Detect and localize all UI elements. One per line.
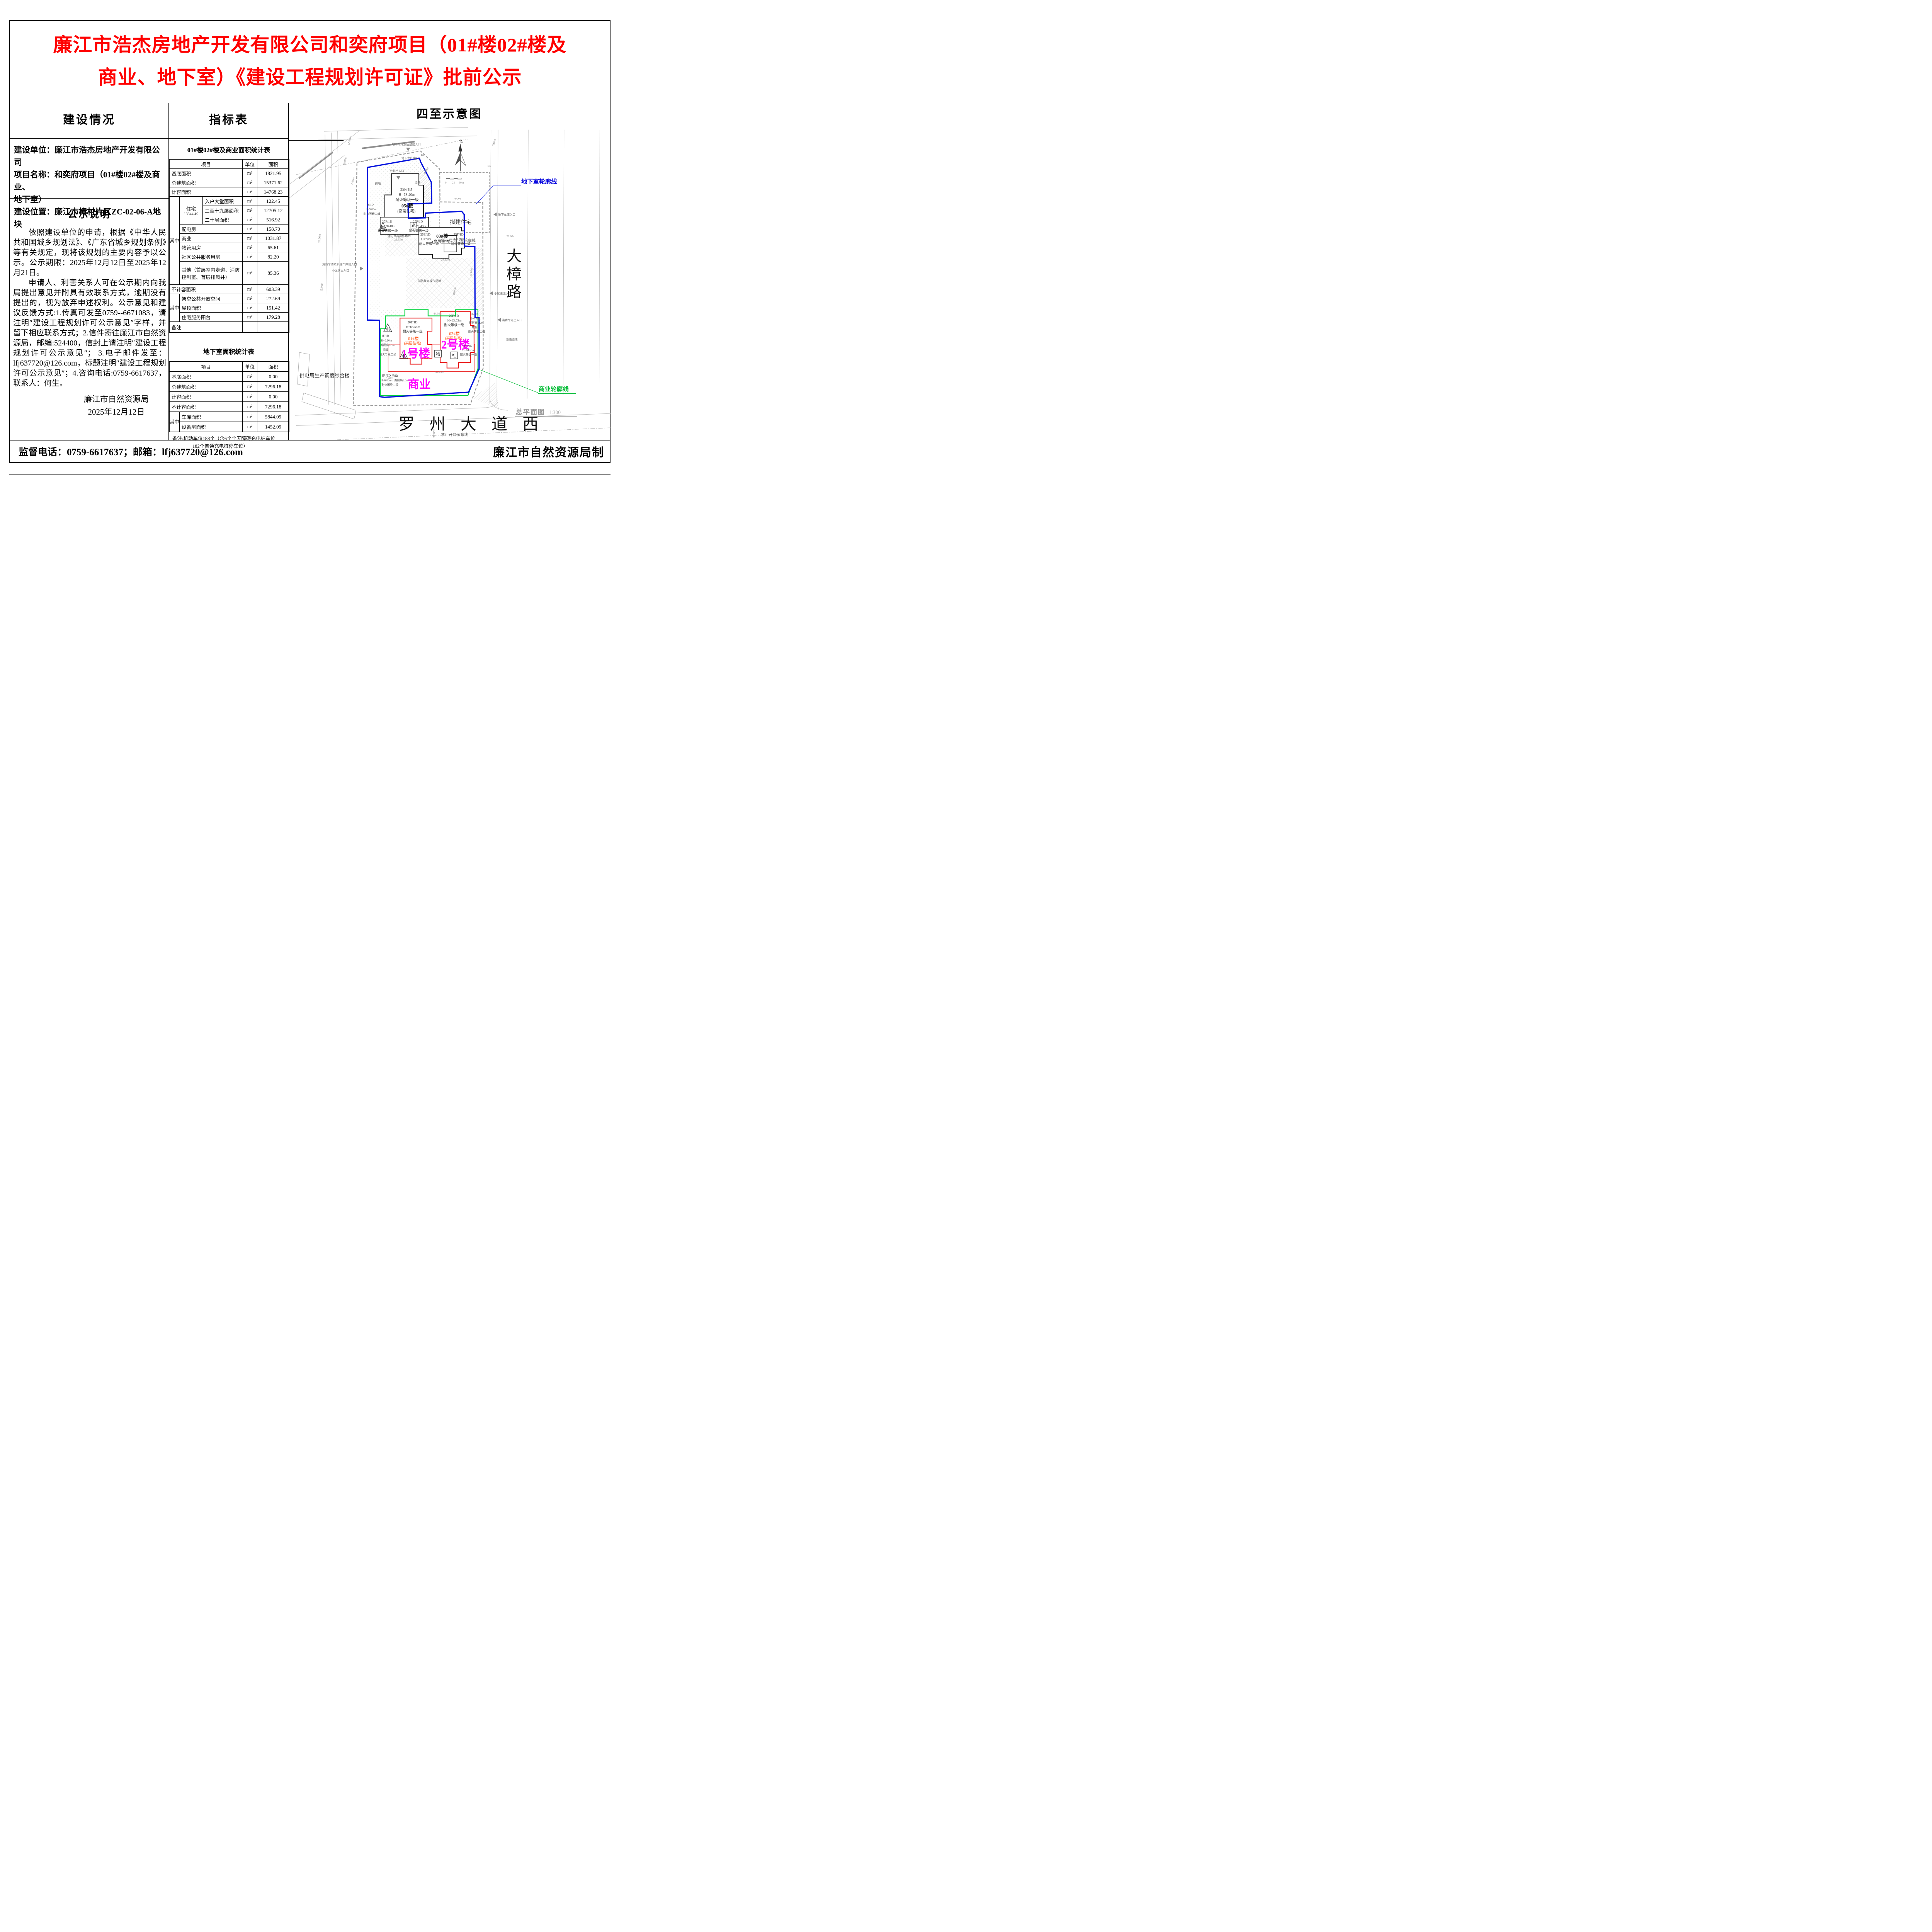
table-row: 基底面积 m² 1821.95	[170, 169, 289, 178]
power-icon-label: 电	[381, 226, 385, 231]
table-cell: 82.20	[257, 252, 289, 262]
table-cell: m²	[243, 294, 257, 303]
table-row: 其中 架空公共开放空间 m² 272.69	[170, 294, 289, 303]
fire-pad-label: 消防登高操作场地	[388, 234, 411, 238]
bldg03-height: H=79m	[421, 237, 431, 241]
entrance-sw2-label: 小区次出入口	[332, 269, 349, 272]
annex-spec: 1F/1D	[366, 203, 374, 206]
table-cell: m²	[243, 372, 257, 382]
table-cell: 入户大堂面积	[203, 197, 243, 206]
entrance-main-label: 小区主出入口	[494, 291, 512, 295]
tower02-height: H=63.55m	[447, 318, 462, 322]
bldg03-spec2: 25F/1D	[454, 233, 464, 236]
table-cell-zhuzhai: 住宅 13344.49	[180, 197, 203, 224]
bldg03-fire2: 耐火等级一级	[451, 242, 471, 246]
bldg03-spec: 25F/1D	[420, 233, 430, 236]
table-cell: 总建筑面积	[170, 382, 243, 392]
table-cell: m²	[243, 392, 257, 402]
radius-label: R6	[488, 164, 491, 168]
area-statistics-table: 项目 单位 面积 基底面积 m² 1821.95 总建筑面积 m² 15371.…	[169, 159, 289, 333]
entrance-arrow-icon	[360, 267, 364, 270]
scalebar-0: 0	[445, 181, 447, 184]
landscape-hatch-left	[368, 247, 380, 320]
table-row: 其中 车库面积 m² 5844.09	[170, 412, 289, 422]
table-row: 配电房 m² 158.70	[170, 224, 289, 234]
tower02-height-r: H=63.55m	[463, 349, 475, 352]
bldg03-name: 03#楼	[436, 233, 448, 239]
issuing-authority: 廉江市自然资源局制	[493, 443, 610, 460]
site-plan: 地下室轮廓线 商业轮廓线 负一层地下室轮廓线 拟建住宅 供电局生产调度综合楼 北…	[289, 126, 611, 441]
road-median-topleft	[299, 153, 333, 179]
section-divider	[10, 198, 168, 199]
table-cell: 计容面积	[170, 187, 243, 197]
table-cell: 单位	[243, 160, 257, 169]
table-cell	[257, 322, 289, 333]
supervision-contact: 监督电话：0759-6617637；邮箱：lfj637720@126.com	[10, 444, 243, 458]
bldg03-height2: H=79m	[454, 237, 464, 241]
signature-date: 2025年12月12日	[68, 406, 165, 418]
bldg05-height: H=78.40m	[399, 193, 415, 197]
signature-block: 廉江市自然资源局 2025年12月12日	[68, 393, 165, 418]
page-title: 廉江市浩杰房地产开发有限公司和奕府项目（01#楼02#楼及 商业、地下室）《建设…	[10, 29, 610, 94]
table-cell: 1452.09	[257, 422, 289, 432]
table-cell: m²	[243, 252, 257, 262]
bldg05-wing2-fire: 耐火等级一级	[409, 229, 429, 233]
table-cell-qizhong: 其中	[170, 294, 180, 322]
table-cell: m²	[243, 262, 257, 285]
entrance-top-label: 地下车库及后勤出入口	[392, 142, 421, 146]
bldg03-fire: 耐火等级一级	[419, 242, 439, 246]
table-cell: 85.36	[257, 262, 289, 285]
table-cell: 15371.62	[257, 178, 289, 187]
table-cell: 车库面积	[180, 412, 243, 422]
table-cell: 7296.18	[257, 382, 289, 392]
indicator-header: 指标表	[169, 103, 288, 139]
table-row: 商业 m² 1031.87	[170, 234, 289, 243]
tower02-fire-r: 耐火等级一级	[460, 353, 477, 356]
table-row: 不计容面积 m² 7296.18	[170, 402, 289, 412]
table-cell: m²	[243, 197, 257, 206]
table-cell: 1031.87	[257, 234, 289, 243]
tower01-fire: 耐火等级一级	[403, 330, 423, 333]
table-row: 不计容面积 m² 603.39	[170, 285, 289, 294]
tower01-annotation: 1号楼	[401, 347, 430, 360]
table-cell: 14768.23	[257, 187, 289, 197]
page-title-line2: 商业、地下室）《建设工程规划许可证》批前公示	[10, 61, 610, 94]
table-cell: 158.70	[257, 224, 289, 234]
shop-fire: 耐火等级二级	[379, 353, 396, 356]
info-unit: 建设单位：廉江市浩杰房地产开发有限公司	[14, 144, 166, 168]
tower01-type: (高层住宅)	[404, 341, 421, 346]
info-project-name-wrap: 地下室）	[14, 193, 166, 206]
table-cell: 65.61	[257, 243, 289, 252]
table-cell: m²	[243, 224, 257, 234]
table-cell: m²	[243, 178, 257, 187]
shop2-height: H=6.80m	[470, 317, 481, 320]
tower02-spec: 20F/1D	[449, 314, 459, 318]
sheet-footer: 监督电话：0759-6617637；邮箱：lfj637720@126.com 廉…	[10, 440, 610, 462]
table-row: 物管用房 m² 65.61	[170, 243, 289, 252]
shop2-use: 商业	[471, 326, 477, 329]
table-cell: 基底面积	[170, 372, 243, 382]
notice-header: 公示说明	[10, 207, 168, 221]
table-cell: 总建筑面积	[170, 178, 243, 187]
bldg05-name: 05#楼	[401, 203, 413, 209]
plan-scale: 1:300	[549, 410, 561, 415]
proposed-residential-label: 拟建住宅	[450, 219, 471, 226]
entrance-arrow-icon	[490, 291, 493, 295]
power-icon-label: 电	[401, 354, 406, 359]
shop3-row2: H=6.80m，首层高6.5m	[381, 379, 408, 382]
shop-spec: 1F/1D	[382, 335, 389, 338]
info-project-name: 项目名称：和奕府项目（01#楼02#楼及商业、	[14, 168, 166, 193]
table-row: 计容面积 m² 14768.23	[170, 187, 289, 197]
entrance-arrow-icon	[497, 318, 501, 322]
table-cell: 179.28	[257, 313, 289, 322]
radius-label: R6	[421, 153, 424, 156]
zhuzhai-label: 住宅	[186, 206, 196, 212]
scalebar-50: 50m	[459, 181, 464, 184]
table-cell: m²	[243, 243, 257, 252]
table-row: 备注	[170, 322, 289, 333]
dim-label: 17.00m	[469, 268, 473, 277]
entrance-back-label: 后勤出入口	[389, 169, 404, 173]
table-cell: 二十层面积	[203, 215, 243, 224]
shop2-spec: 1F/1D	[470, 313, 478, 316]
table-cell-remark: 备注	[170, 322, 243, 333]
elevation-label: ·23.79	[454, 197, 461, 201]
table-row: 基底面积 m² 0.00	[170, 372, 289, 382]
entrance-arrow-icon	[406, 148, 410, 151]
table-cell: 151.42	[257, 303, 289, 313]
annex-fire: 耐火等级二级	[364, 212, 381, 216]
table-row: 其他（首层室内走道、消防控制室、首层排风井） m² 85.36	[170, 262, 289, 285]
dim-label: 44.56m	[434, 312, 442, 315]
table-cell: 架空公共开放空间	[180, 294, 243, 303]
table-cell: 计容面积	[170, 392, 243, 402]
scale-bar	[446, 178, 461, 179]
dim-label: 23.85m	[394, 238, 403, 241]
table-row: 项目 单位 面积	[170, 160, 289, 169]
bldg05-wing-spec: 25F/1D	[382, 219, 392, 223]
table2-title: 地下室面积统计表	[169, 347, 288, 356]
dim-label: 5.40m	[386, 376, 393, 380]
dim-label: 28.32m	[441, 258, 450, 262]
table-cell: 1821.95	[257, 169, 289, 178]
table-cell: 272.69	[257, 294, 289, 303]
power-bureau-building-2	[298, 352, 310, 386]
shop-use: 商业	[383, 348, 389, 352]
table-row: 屋顶面积 m² 151.42	[170, 303, 289, 313]
table-cell: m²	[243, 234, 257, 243]
table-cell: 12705.12	[257, 206, 289, 215]
table-cell-qizhong: 其中	[170, 197, 180, 285]
annex-height: H=5.80m	[366, 208, 376, 211]
table-cell: 7296.18	[257, 402, 289, 412]
power-bureau-label: 供电局生产调度综合楼	[299, 373, 350, 379]
indicator-column: 指标表 01#楼02#楼及商业面积统计表 项目 单位 面积 基底面积 m² 18…	[169, 103, 289, 440]
table-cell: m²	[243, 206, 257, 215]
table-cell: 屋顶面积	[180, 303, 243, 313]
table-cell: 物管用房	[180, 243, 243, 252]
table-cell: 单位	[243, 362, 257, 372]
table-row: 总建筑面积 m² 15371.62	[170, 178, 289, 187]
table-cell: m²	[243, 313, 257, 322]
table-cell: 项目	[170, 160, 243, 169]
green-label: 绿地	[415, 180, 421, 184]
table-cell	[243, 322, 257, 333]
corner-green-hatch	[472, 383, 499, 410]
entrance-arrow-icon	[493, 213, 497, 216]
table1-title: 01#楼02#楼及商业面积统计表	[169, 145, 288, 154]
table-cell: m²	[243, 303, 257, 313]
table-row: 其中 住宅 13344.49 入户大堂面积 m² 122.45	[170, 197, 289, 206]
table-cell: 不计容面积	[170, 285, 243, 294]
notice-page: 廉江市浩杰房地产开发有限公司和奕府项目（01#楼02#楼及 商业、地下室）《建设…	[0, 0, 618, 495]
road-edge-label: 道路边线	[506, 337, 518, 341]
table-cell: m²	[243, 169, 257, 178]
scalebar-25: 25	[452, 181, 455, 184]
commercial-annotation: 商业	[408, 378, 430, 391]
dim-label: 52.15m	[435, 370, 444, 374]
table-cell: 基底面积	[170, 169, 243, 178]
bldg05-fire: 耐火等级一级	[395, 197, 418, 202]
notice-paragraph-2: 申请人、利害关系人可在公示期内向我局提出意见并附具有效联系方式，逾期没有提出的，…	[13, 278, 166, 388]
entrance-garage-label: 地下车库入口	[498, 213, 515, 216]
table-cell: 二至十九层面积	[203, 206, 243, 215]
table-cell: m²	[243, 285, 257, 294]
basement-outline-label: 地下室轮廓线	[521, 178, 558, 185]
table-row: 总建筑面积 m² 7296.18	[170, 382, 289, 392]
page-title-line1: 廉江市浩杰房地产开发有限公司和奕府项目（01#楼02#楼及	[10, 29, 610, 61]
construction-info-column: 建设情况 建设单位：廉江市浩杰房地产开发有限公司 项目名称：和奕府项目（01#楼…	[10, 103, 169, 440]
exit-top-label: 地下车库出口	[401, 156, 419, 160]
entrance-sw-label: 消防车道及机械车库出入口	[322, 262, 357, 266]
commercial-outline-label: 商业轮廓线	[539, 385, 569, 393]
tower02-name: 02#楼	[449, 331, 460, 336]
tower01-height: H=63.55m	[406, 325, 420, 329]
edge-hatch-east	[476, 248, 483, 316]
no-open-line-label: 禁止开口示意线	[441, 432, 468, 437]
table-cell-qizhong: 其中	[170, 412, 180, 432]
table-cell: 其他（首层室内走道、消防控制室、首层排风井）	[180, 262, 243, 285]
plan-title-underline	[515, 417, 577, 418]
tower01-name: 01#楼	[408, 336, 419, 341]
notice-paragraph-1: 依照建设单位的申请，根据《中华人民共和国城乡规划法》、《广东省城乡规划条例》等有…	[13, 228, 166, 278]
signature-org: 廉江市自然资源局	[68, 393, 165, 406]
table-cell: 516.92	[257, 215, 289, 224]
shop2-floor: 首层高6.5m	[469, 321, 483, 325]
table-cell: 0.00	[257, 392, 289, 402]
table-cell: 面积	[257, 362, 289, 372]
tower02-fire: 耐火等级一级	[444, 323, 464, 327]
table-row: 住宅服务阳台 m² 179.28	[170, 313, 289, 322]
basement-label-leader	[476, 186, 521, 204]
table-cell: 603.39	[257, 285, 289, 294]
plan-title: 总平面图	[516, 408, 545, 416]
construction-info-header: 建设情况	[10, 103, 168, 139]
dim-label: 35.00m	[432, 429, 436, 438]
fire-pad-label: 消防登高操作场地	[418, 279, 442, 283]
table-row: 社区公共服务用房 m² 82.20	[170, 252, 289, 262]
table-cell: 122.45	[257, 197, 289, 206]
green-label: 绿地	[375, 182, 381, 185]
site-map-column: 四至示意图	[289, 103, 610, 440]
notice-sheet: 廉江市浩杰房地产开发有限公司和奕府项目（01#楼02#楼及 商业、地下室）《建设…	[9, 20, 611, 463]
property-mgmt-label: 物	[436, 351, 440, 357]
tower01-spec: 20F/1D	[408, 320, 418, 324]
table-cell: 住宅服务阳台	[180, 313, 243, 322]
dim-label: 12.00m	[347, 136, 352, 145]
table-cell: m²	[243, 422, 257, 432]
road-name-south: 罗州大道西	[399, 415, 554, 433]
dim-label: 20.00m	[507, 235, 515, 238]
bldg05-spec: 25F/1D	[400, 188, 412, 192]
table-cell: 0.00	[257, 372, 289, 382]
table-cell: 项目	[170, 362, 243, 372]
shop3-fire: 耐火等级二级	[381, 383, 398, 387]
table-cell: m²	[243, 382, 257, 392]
table-cell: 配电房	[180, 224, 243, 234]
dim-label: 15.00m	[320, 282, 323, 291]
table-row: 设备房面积 m² 1452.09	[170, 422, 289, 432]
table-cell: 社区公共服务用房	[180, 252, 243, 262]
notice-paragraphs: 依照建设单位的申请，根据《中华人民共和国城乡规划法》、《广东省城乡规划条例》等有…	[13, 228, 166, 388]
tower02-spec-r: 20F/1D	[464, 344, 472, 347]
site-plan-svg: 地下室轮廓线 商业轮廓线 负一层地下室轮廓线 拟建住宅 供电局生产调度综合楼 北…	[289, 126, 611, 441]
shop-floor: 首层高6.5m	[380, 344, 395, 347]
table-row: 项目 单位 面积	[170, 362, 289, 372]
table-cell: m²	[243, 412, 257, 422]
table-cell: 商业	[180, 234, 243, 243]
elderly-label: 老	[412, 223, 416, 228]
table-cell: m²	[243, 187, 257, 197]
bldg05-type: (高层住宅)	[398, 209, 416, 214]
content-columns: 建设情况 建设单位：廉江市浩杰房地产开发有限公司 项目名称：和奕府项目（01#楼…	[10, 103, 610, 440]
table-cell: 不计容面积	[170, 402, 243, 412]
dim-label: 2.00m	[350, 177, 355, 185]
table-cell: 面积	[257, 160, 289, 169]
table-cell: 设备房面积	[180, 422, 243, 432]
zhuzhai-total: 13344.49	[180, 212, 202, 216]
basement-statistics-table: 项目 单位 面积 基底面积 m² 0.00 总建筑面积 m² 7296.18	[169, 361, 289, 432]
table-row: 计容面积 m² 0.00	[170, 392, 289, 402]
dim-label: 22.00m	[318, 234, 321, 243]
shop-height: H=6.80m	[381, 339, 392, 342]
north-label: 北	[459, 139, 463, 144]
community-label: 社	[452, 353, 456, 358]
exit-fire-label: 消防车道出入口	[502, 318, 522, 322]
power-bureau-building	[302, 393, 356, 419]
bottom-rule	[9, 474, 611, 475]
fire-pad-hatch	[406, 258, 474, 308]
table-cell: m²	[243, 402, 257, 412]
bldg05-wing2-spec: 25F/1D	[413, 219, 423, 223]
table-cell: m²	[243, 215, 257, 224]
dim-label: 5.00m	[491, 138, 497, 146]
shop2-fire: 耐火等级二级	[468, 330, 485, 333]
site-map-header: 四至示意图	[289, 103, 610, 126]
north-arrow-icon	[455, 144, 466, 171]
power-icon-label: 电	[386, 327, 390, 332]
table-cell: 5844.09	[257, 412, 289, 422]
